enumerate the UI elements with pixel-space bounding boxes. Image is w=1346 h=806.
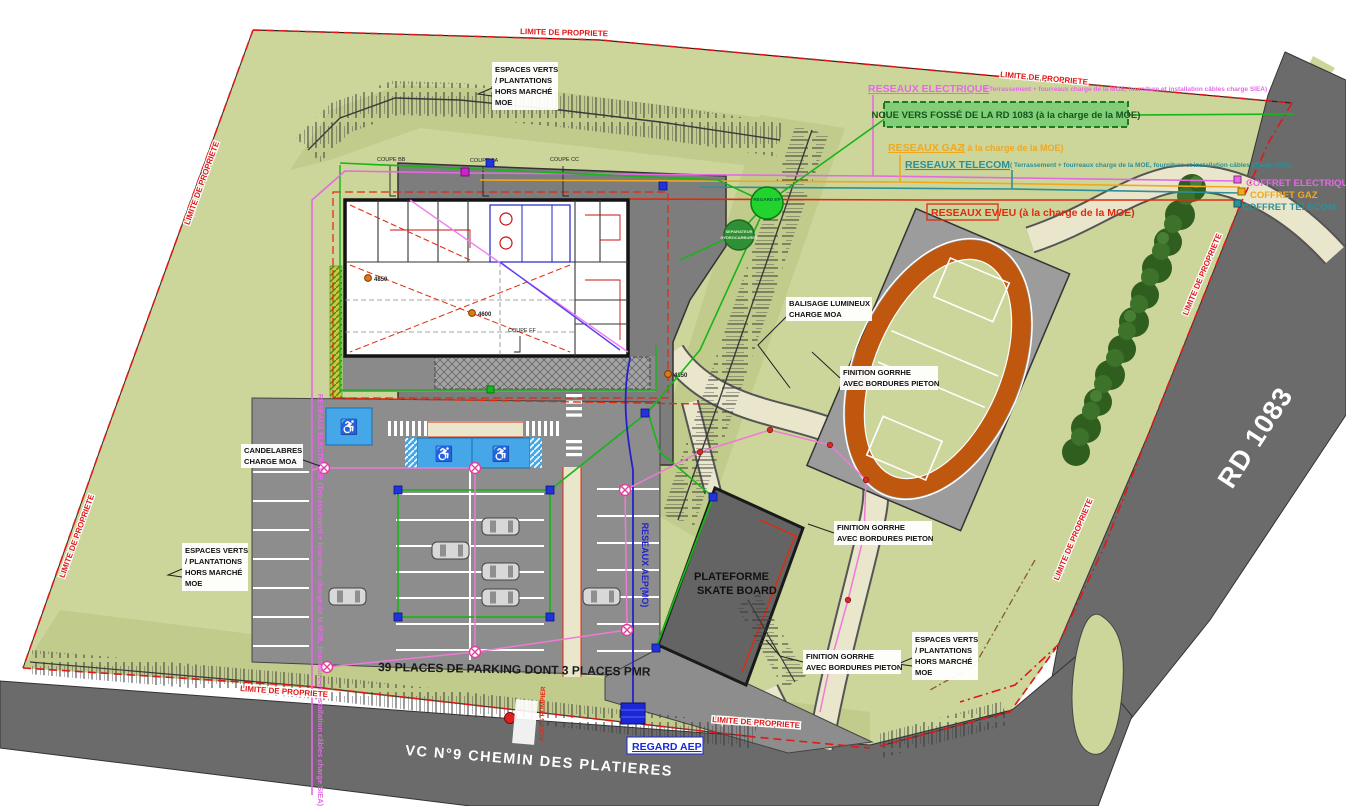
reseaux-telecom-label: RESEAUX TELECOM xyxy=(905,159,1010,171)
reseaux-electrique-note: ( Terrassement + fourreaux charge de la … xyxy=(985,86,1267,93)
coffret-gaz-label: COFFRET GAZ xyxy=(1250,190,1318,201)
site-plan-page: 4850 4600 4850 COUPE BB COUPE AA COUPE C… xyxy=(0,0,1346,806)
walkway-top xyxy=(428,421,523,438)
espaces-verts-line: ESPACES VERTS xyxy=(915,635,978,644)
regard-aep-marker xyxy=(621,703,645,724)
regard-ep-marker: REGARD EP xyxy=(751,187,783,219)
coupe-bb-label: COUPE BB xyxy=(377,157,406,163)
skate-label-2: SKATE BOARD xyxy=(697,585,777,597)
site-plan-canvas: 4850 4600 4850 COUPE BB COUPE AA COUPE C… xyxy=(0,0,1346,806)
wheelchair-icon: ♿ xyxy=(435,445,454,463)
noue-box: NOUE VERS FOSSÉ DE LA RD 1083 (à la char… xyxy=(872,102,1141,127)
finition-line: FINITION GORRHE xyxy=(837,523,905,532)
espaces-verts-line: / PLANTATIONS xyxy=(495,76,552,85)
espaces-verts-line: ESPACES VERTS xyxy=(185,546,248,555)
espaces-verts-line: HORS MARCHÉ xyxy=(495,87,552,96)
separateur-label-1: SEPARATEUR xyxy=(726,229,753,234)
coffret-telecom-label: COFFRET TELECOM xyxy=(1242,202,1336,213)
terrace-hatched xyxy=(435,357,650,389)
regard-aep-label: REGARD AEP xyxy=(632,741,702,753)
reseaux-eveu-group: RESEAUX EV/EU (à la charge de la MOE) xyxy=(927,204,1135,220)
reseaux-electrique-vertical: RESEAUX ELECTRIQUE (Terrassement + fourr… xyxy=(316,394,325,806)
reseaux-electrique-label: RESEAUX ELECTRIQUE xyxy=(868,83,989,95)
balisage-line: CHARGE MOA xyxy=(789,310,842,319)
balisage-line: BALISAGE LUMINEUX xyxy=(789,299,870,308)
wheelchair-icon: ♿ xyxy=(340,418,359,436)
skate-label-1: PLATEFORME xyxy=(694,571,769,583)
building-footprint xyxy=(345,200,628,356)
noue-label: NOUE VERS FOSSÉ DE LA RD 1083 (à la char… xyxy=(872,110,1141,121)
regard-ep-label: REGARD EP xyxy=(753,197,780,202)
candelabres-line: CHARGE MOA xyxy=(244,457,297,466)
reseaux-gaz-note: ( à la charge de la MOE) xyxy=(962,143,1064,153)
espaces-verts-line: MOE xyxy=(495,98,512,107)
espaces-verts-line: ESPACES VERTS xyxy=(495,65,558,74)
coffret-electrique-label: COFFRET ELECTRIQUE xyxy=(1246,178,1346,189)
espaces-verts-line: HORS MARCHÉ xyxy=(915,657,972,666)
espaces-verts-line: / PLANTATIONS xyxy=(915,646,972,655)
wheelchair-icon: ♿ xyxy=(492,445,511,463)
spot-level-text: 4850 xyxy=(374,277,388,283)
reseaux-telecom-note: ( Terrassement + fourreaux charge de la … xyxy=(1010,162,1292,169)
acces-pompier-gap xyxy=(512,699,538,745)
spot-level-text: 4600 xyxy=(478,312,492,318)
reseaux-eveu-label: RESEAUX EV/EU (à la charge de la MOE) xyxy=(931,207,1135,219)
coupe-cc-label: COUPE CC xyxy=(550,157,579,163)
limite-label-top: LIMITE DE PROPRIETE xyxy=(520,27,609,38)
espaces-verts-line: MOE xyxy=(915,668,932,677)
finition-line: FINITION GORRHE xyxy=(806,652,874,661)
espaces-verts-line: MOE xyxy=(185,579,202,588)
espaces-verts-line: / PLANTATIONS xyxy=(185,557,242,566)
parking-walkway xyxy=(563,467,581,677)
reseaux-aep-vertical: RESEAUX AEP(MO) xyxy=(640,523,650,608)
regard-aep-annotation: REGARD AEP xyxy=(627,737,703,754)
pmr-hatch xyxy=(405,438,417,468)
candelabres-line: CANDELABRES xyxy=(244,446,302,455)
green-node xyxy=(487,386,494,393)
separateur-label-2: HYDROCARBURES xyxy=(720,235,757,240)
finition-line: AVEC BORDURES PIETON xyxy=(837,534,933,543)
coupe-ff-label: COUPE FF xyxy=(508,328,536,334)
reseaux-gaz-label: RESEAUX GAZ xyxy=(888,142,964,154)
hydrant-marker xyxy=(505,713,516,724)
espaces-verts-line: HORS MARCHÉ xyxy=(185,568,242,577)
pmr-hatch xyxy=(530,438,542,468)
finition-line: AVEC BORDURES PIETON xyxy=(806,663,902,672)
finition-line: FINITION GORRHE xyxy=(843,368,911,377)
finition-line: AVEC BORDURES PIETON xyxy=(843,379,939,388)
